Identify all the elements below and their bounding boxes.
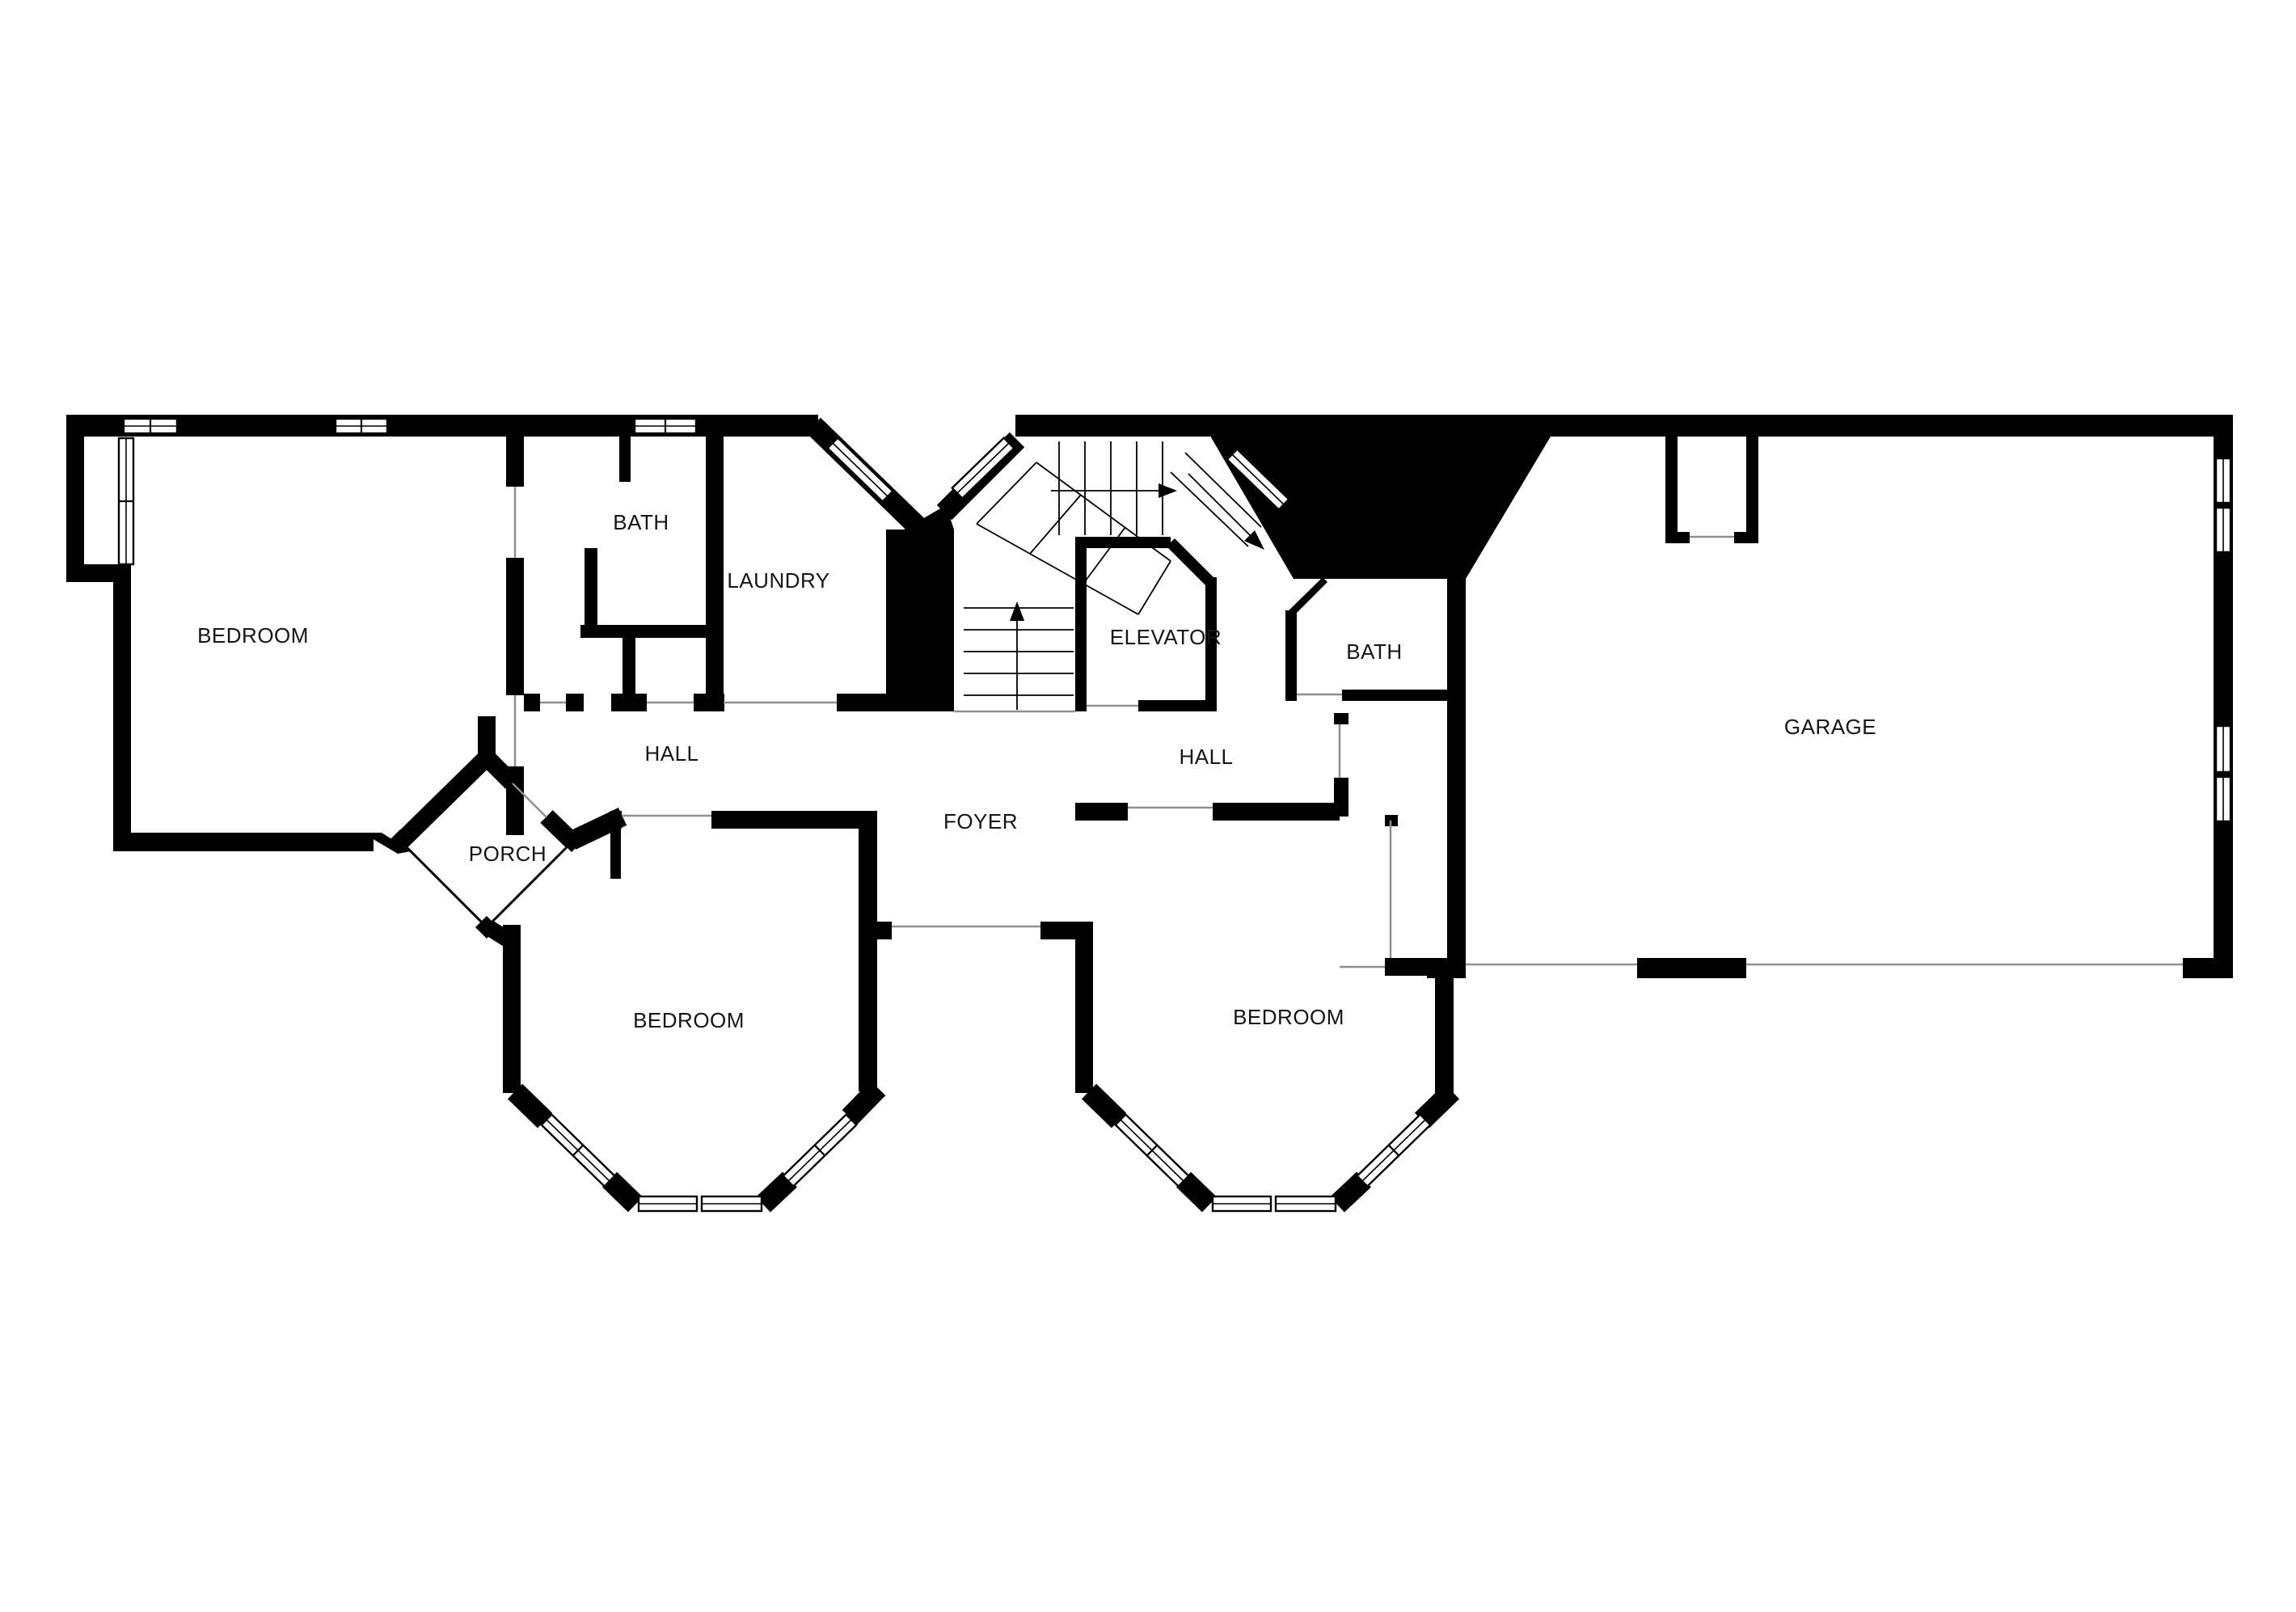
room-labels-layer: BEDROOM BATH LAUNDRY ELEVATOR BATH HALL … bbox=[197, 510, 1876, 1032]
room-label-garage: GARAGE bbox=[1784, 715, 1876, 739]
room-label-porch: PORCH bbox=[469, 842, 547, 866]
room-label-bedroom-bottom-right: BEDROOM bbox=[1233, 1005, 1344, 1029]
floor-plan-drawing: BEDROOM BATH LAUNDRY ELEVATOR BATH HALL … bbox=[0, 0, 2296, 1612]
room-label-bedroom-top-left: BEDROOM bbox=[197, 623, 309, 648]
room-label-bath-top-left: BATH bbox=[613, 510, 669, 534]
room-label-bath-center-right: BATH bbox=[1346, 639, 1402, 664]
room-label-hall-left: HALL bbox=[644, 741, 699, 766]
room-label-bedroom-bottom-left: BEDROOM bbox=[633, 1008, 745, 1032]
floor-plan-canvas: BEDROOM BATH LAUNDRY ELEVATOR BATH HALL … bbox=[0, 0, 2296, 1612]
room-label-hall-right: HALL bbox=[1179, 745, 1233, 769]
room-label-elevator: ELEVATOR bbox=[1110, 625, 1222, 649]
room-label-foyer: FOYER bbox=[943, 809, 1018, 833]
room-label-laundry: LAUNDRY bbox=[727, 568, 829, 593]
walls-layer bbox=[66, 415, 2233, 1205]
